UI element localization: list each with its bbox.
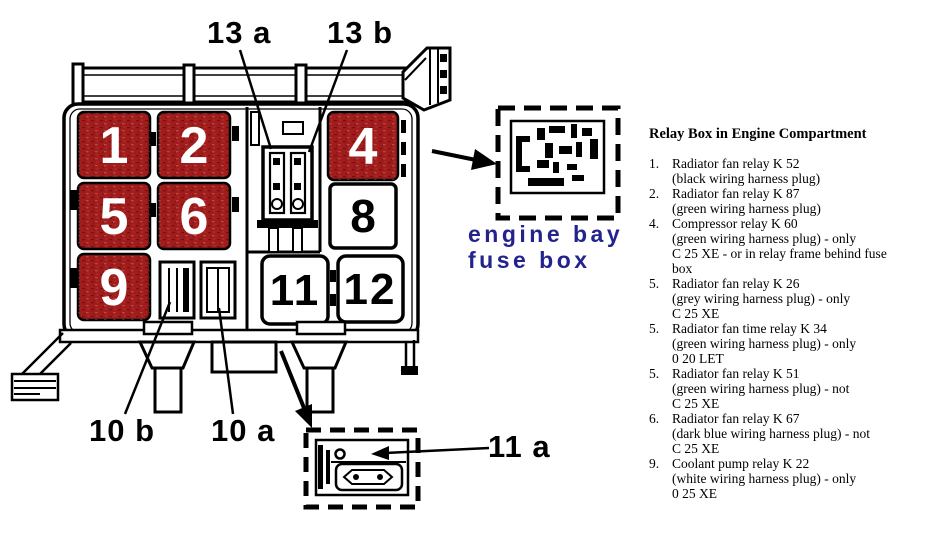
legend-item-2: 2. Radiator fan relay K 87 (green wiring… [649,186,937,216]
socket-10b [160,262,194,318]
relay-8: 8 [330,184,396,248]
legend-item-text: Radiator fan relay K 52 (black wiring ha… [672,156,820,186]
callout-10a: 10 a [211,413,275,448]
relay-4: 4 [328,112,398,180]
relay-9: 9 [78,254,150,320]
legend-item-number: 4. [649,216,672,276]
legend-item-text: Compressor relay K 60 (green wiring harn… [672,216,887,276]
relay-number-6: 6 [180,188,209,246]
legend-item-4: 4. Compressor relay K 60 (green wiring h… [649,216,937,276]
callout-13b: 13 b [327,15,393,50]
engine-bay-fuse-box-detail [498,108,618,218]
relay-12: 12 [338,256,403,322]
legend-item-text: Radiator fan time relay K 34 (green wiri… [672,321,856,366]
legend: Relay Box in Engine Compartment 1. Radia… [649,127,937,501]
rail-end-connector [403,48,450,110]
engine-bay-fuse-box-caption: engine bay fuse box [468,221,623,273]
legend-item-text: Radiator fan relay K 51 (green wiring ha… [672,366,849,411]
right-foot [401,340,418,375]
relay-2: 2 [158,112,230,178]
legend-item-5b: 5. Radiator fan time relay K 34 (green w… [649,321,937,366]
legend-item-text: Radiator fan relay K 87 (green wiring ha… [672,186,821,216]
relay-11a-detail [306,430,418,507]
legend-item-text: Radiator fan relay K 67 (dark blue wirin… [672,411,870,456]
caption-line-1: engine bay [468,221,623,247]
relay-number-2: 2 [180,117,209,175]
legend-item-9: 9. Coolant pump relay K 22 (white wiring… [649,456,937,501]
arrow-11a-pointer [371,446,489,460]
legend-item-6: 6. Radiator fan relay K 67 (dark blue wi… [649,411,937,456]
relay-number-9: 9 [100,259,129,317]
legend-item-number: 6. [649,411,672,456]
relay-number-8: 8 [350,190,376,242]
relay-1: 1 [78,112,150,178]
legend-item-number: 1. [649,156,672,186]
legend-item-number: 5. [649,366,672,411]
legend-item-number: 2. [649,186,672,216]
legend-item-text: Coolant pump relay K 22 (white wiring ha… [672,456,856,501]
relay-number-1: 1 [100,117,129,175]
relay-11: 11 [262,256,328,324]
legend-title: Relay Box in Engine Compartment [649,127,937,142]
bottom-mounting [12,322,418,412]
callout-13a: 13 a [207,15,271,50]
relay-6: 6 [158,183,230,249]
legend-item-text: Radiator fan relay K 26 (grey wiring har… [672,276,850,321]
legend-item-5a: 5. Radiator fan relay K 26 (grey wiring … [649,276,937,321]
legend-item-5c: 5. Radiator fan relay K 51 (green wiring… [649,366,937,411]
caption-line-2: fuse box [468,247,623,273]
callout-11a: 11 a [488,429,551,464]
legend-item-1: 1. Radiator fan relay K 52 (black wiring… [649,156,937,186]
relay-number-11: 11 [270,266,321,315]
arrow-to-engine-bay-box [432,149,497,170]
legend-item-number: 9. [649,456,672,501]
legend-item-number: 5. [649,276,672,321]
top-rail [73,48,450,110]
relay-number-4: 4 [349,118,378,176]
legend-item-number: 5. [649,321,672,366]
relay-number-5: 5 [100,188,129,246]
relay-number-12: 12 [344,265,397,314]
relay-box-diagram-page: 1 2 4 5 6 9 8 [0,0,942,538]
relay-5: 5 [78,183,150,249]
callout-10b: 10 b [89,413,155,448]
